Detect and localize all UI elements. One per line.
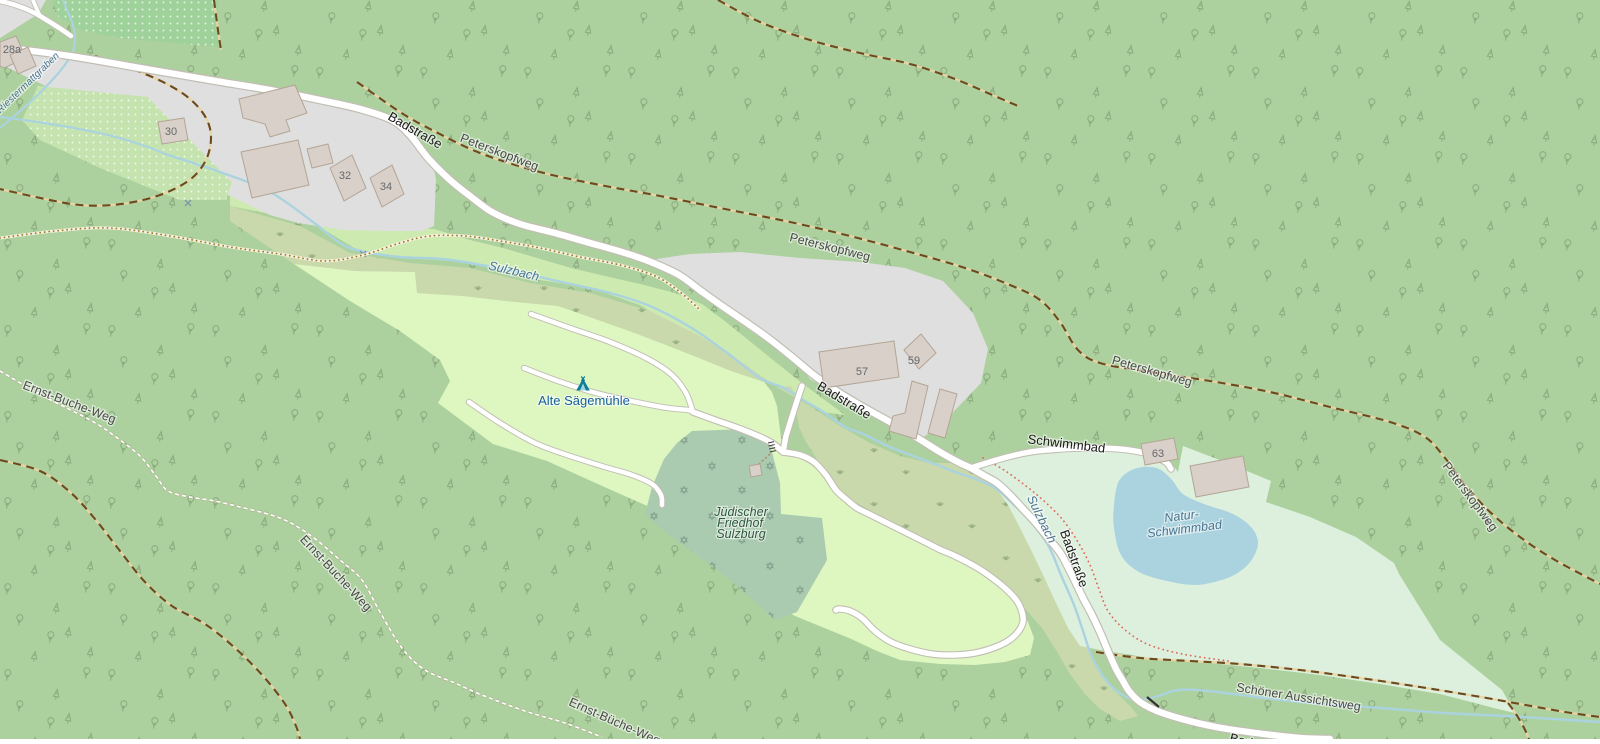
svg-text:34: 34 xyxy=(380,181,392,193)
svg-text:57: 57 xyxy=(856,366,868,378)
svg-text:Alte Sägemühle: Alte Sägemühle xyxy=(538,393,630,408)
svg-text:59: 59 xyxy=(908,355,920,367)
svg-text:28a: 28a xyxy=(3,44,22,56)
svg-text:32: 32 xyxy=(339,170,351,182)
svg-text:Sulzburg: Sulzburg xyxy=(716,527,765,541)
svg-text:63: 63 xyxy=(1152,448,1164,460)
svg-text:30: 30 xyxy=(165,126,177,138)
